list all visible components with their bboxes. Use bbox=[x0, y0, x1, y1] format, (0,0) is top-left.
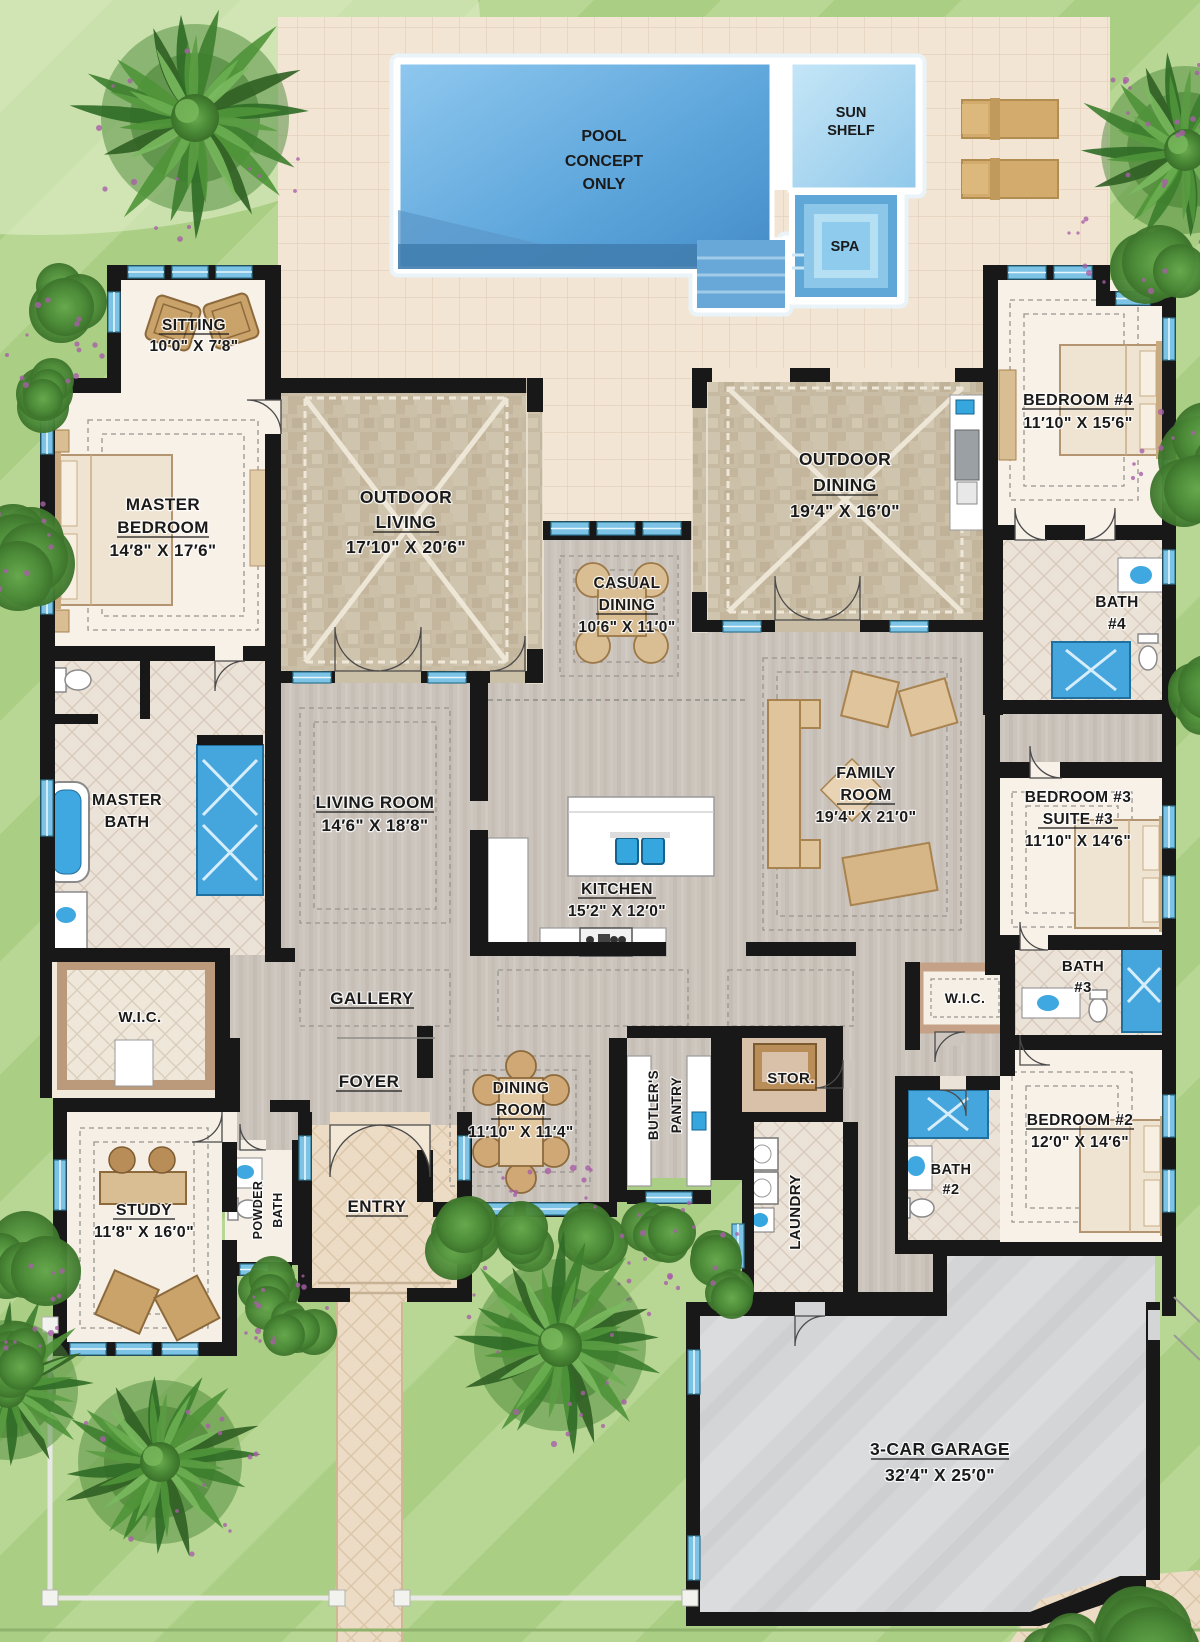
svg-text:#2: #2 bbox=[943, 1182, 960, 1198]
svg-text:14′6" X 18′8": 14′6" X 18′8" bbox=[322, 816, 429, 835]
svg-text:11′10" X 15′6": 11′10" X 15′6" bbox=[1023, 415, 1132, 432]
svg-text:3-CAR GARAGE: 3-CAR GARAGE bbox=[870, 1439, 1010, 1459]
svg-text:GALLERY: GALLERY bbox=[330, 989, 414, 1008]
svg-text:SUITE #3: SUITE #3 bbox=[1043, 811, 1113, 828]
svg-text:11′10" X 11′4": 11′10" X 11′4" bbox=[468, 1124, 573, 1141]
svg-text:MASTER: MASTER bbox=[126, 495, 200, 514]
svg-text:BUTLER'S: BUTLER'S bbox=[646, 1070, 661, 1140]
svg-text:BATH: BATH bbox=[105, 814, 150, 831]
svg-text:W.I.C.: W.I.C. bbox=[945, 990, 986, 1006]
svg-text:MASTER: MASTER bbox=[92, 792, 162, 809]
svg-text:FAMILY: FAMILY bbox=[836, 765, 896, 782]
svg-text:SPA: SPA bbox=[831, 239, 860, 255]
svg-text:POOL: POOL bbox=[581, 128, 627, 145]
svg-text:BATH: BATH bbox=[1062, 958, 1104, 975]
svg-text:STUDY: STUDY bbox=[116, 1202, 172, 1219]
svg-text:CASUAL: CASUAL bbox=[594, 575, 661, 592]
svg-text:14′8" X 17′6": 14′8" X 17′6" bbox=[110, 541, 217, 560]
svg-text:POWDER: POWDER bbox=[251, 1181, 265, 1240]
svg-text:17′10" X 20′6": 17′10" X 20′6" bbox=[346, 537, 466, 557]
svg-text:BEDROOM #4: BEDROOM #4 bbox=[1023, 392, 1133, 409]
svg-text:DINING: DINING bbox=[813, 475, 877, 495]
svg-text:SUN: SUN bbox=[836, 105, 867, 121]
svg-text:KITCHEN: KITCHEN bbox=[581, 881, 653, 898]
svg-text:ROOM: ROOM bbox=[496, 1102, 546, 1119]
svg-text:BATH: BATH bbox=[271, 1192, 285, 1227]
svg-text:10′0" X 7′8": 10′0" X 7′8" bbox=[150, 338, 239, 355]
svg-text:SHELF: SHELF bbox=[827, 123, 875, 139]
svg-text:BATH: BATH bbox=[931, 1162, 972, 1178]
svg-text:DINING: DINING bbox=[493, 1080, 550, 1097]
svg-text:19′4" X 16′0": 19′4" X 16′0" bbox=[790, 501, 900, 521]
svg-text:LIVING ROOM: LIVING ROOM bbox=[316, 793, 435, 812]
svg-text:BATH: BATH bbox=[1095, 594, 1139, 611]
svg-text:SITTING: SITTING bbox=[162, 317, 226, 334]
svg-text:11′10" X 14′6": 11′10" X 14′6" bbox=[1025, 833, 1131, 850]
svg-text:FOYER: FOYER bbox=[339, 1072, 400, 1091]
svg-text:BEDROOM: BEDROOM bbox=[117, 518, 209, 537]
svg-text:19′4" X 21′0": 19′4" X 21′0" bbox=[816, 809, 917, 826]
svg-text:DINING: DINING bbox=[599, 597, 656, 614]
svg-text:OUTDOOR: OUTDOOR bbox=[799, 449, 891, 469]
svg-text:LAUNDRY: LAUNDRY bbox=[787, 1174, 804, 1250]
svg-text:STOR.: STOR. bbox=[767, 1070, 815, 1087]
svg-text:CONCEPT: CONCEPT bbox=[565, 153, 643, 170]
svg-text:PANTRY: PANTRY bbox=[669, 1077, 684, 1133]
svg-text:#3: #3 bbox=[1074, 979, 1092, 996]
svg-text:BEDROOM #2: BEDROOM #2 bbox=[1027, 1112, 1134, 1129]
svg-text:10′6" X 11′0": 10′6" X 11′0" bbox=[578, 619, 675, 636]
svg-text:ONLY: ONLY bbox=[583, 176, 626, 193]
svg-text:32′4" X 25′0": 32′4" X 25′0" bbox=[885, 1465, 995, 1485]
svg-text:#4: #4 bbox=[1108, 616, 1126, 633]
svg-text:BEDROOM #3: BEDROOM #3 bbox=[1025, 789, 1132, 806]
svg-text:OUTDOOR: OUTDOOR bbox=[360, 487, 452, 507]
svg-text:ENTRY: ENTRY bbox=[348, 1197, 407, 1216]
svg-text:12′0" X 14′6": 12′0" X 14′6" bbox=[1031, 1134, 1129, 1151]
svg-text:LIVING: LIVING bbox=[376, 512, 437, 532]
svg-text:ROOM: ROOM bbox=[840, 787, 891, 804]
svg-text:W.I.C.: W.I.C. bbox=[118, 1009, 161, 1026]
svg-text:15′2" X 12′0": 15′2" X 12′0" bbox=[568, 903, 666, 920]
svg-text:11′8" X 16′0": 11′8" X 16′0" bbox=[94, 1224, 194, 1241]
